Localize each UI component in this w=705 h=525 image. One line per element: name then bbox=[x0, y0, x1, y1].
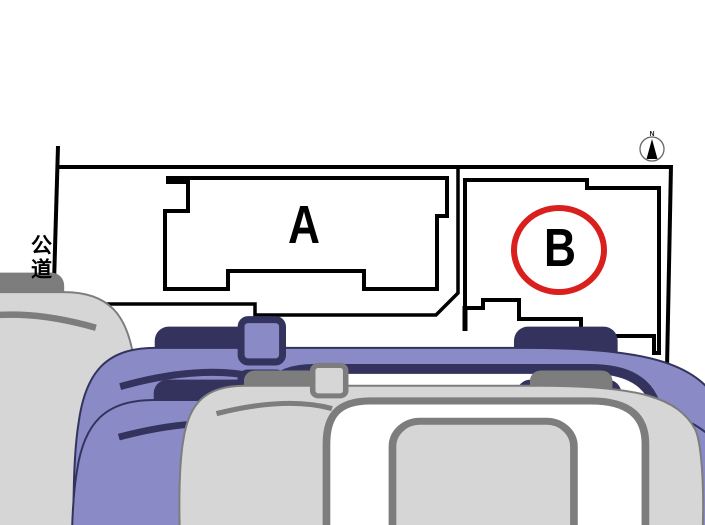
site-plan-canvas: 公道 A B N bbox=[0, 0, 705, 525]
road-label: 公道 bbox=[30, 234, 51, 282]
building-a-label: A bbox=[288, 198, 320, 252]
east-boundary-line bbox=[667, 165, 671, 368]
site-plan-drawing bbox=[0, 0, 705, 525]
compass-north-icon bbox=[640, 137, 664, 161]
compass-n-label: N bbox=[649, 131, 654, 138]
building-b-label: B bbox=[544, 221, 576, 275]
